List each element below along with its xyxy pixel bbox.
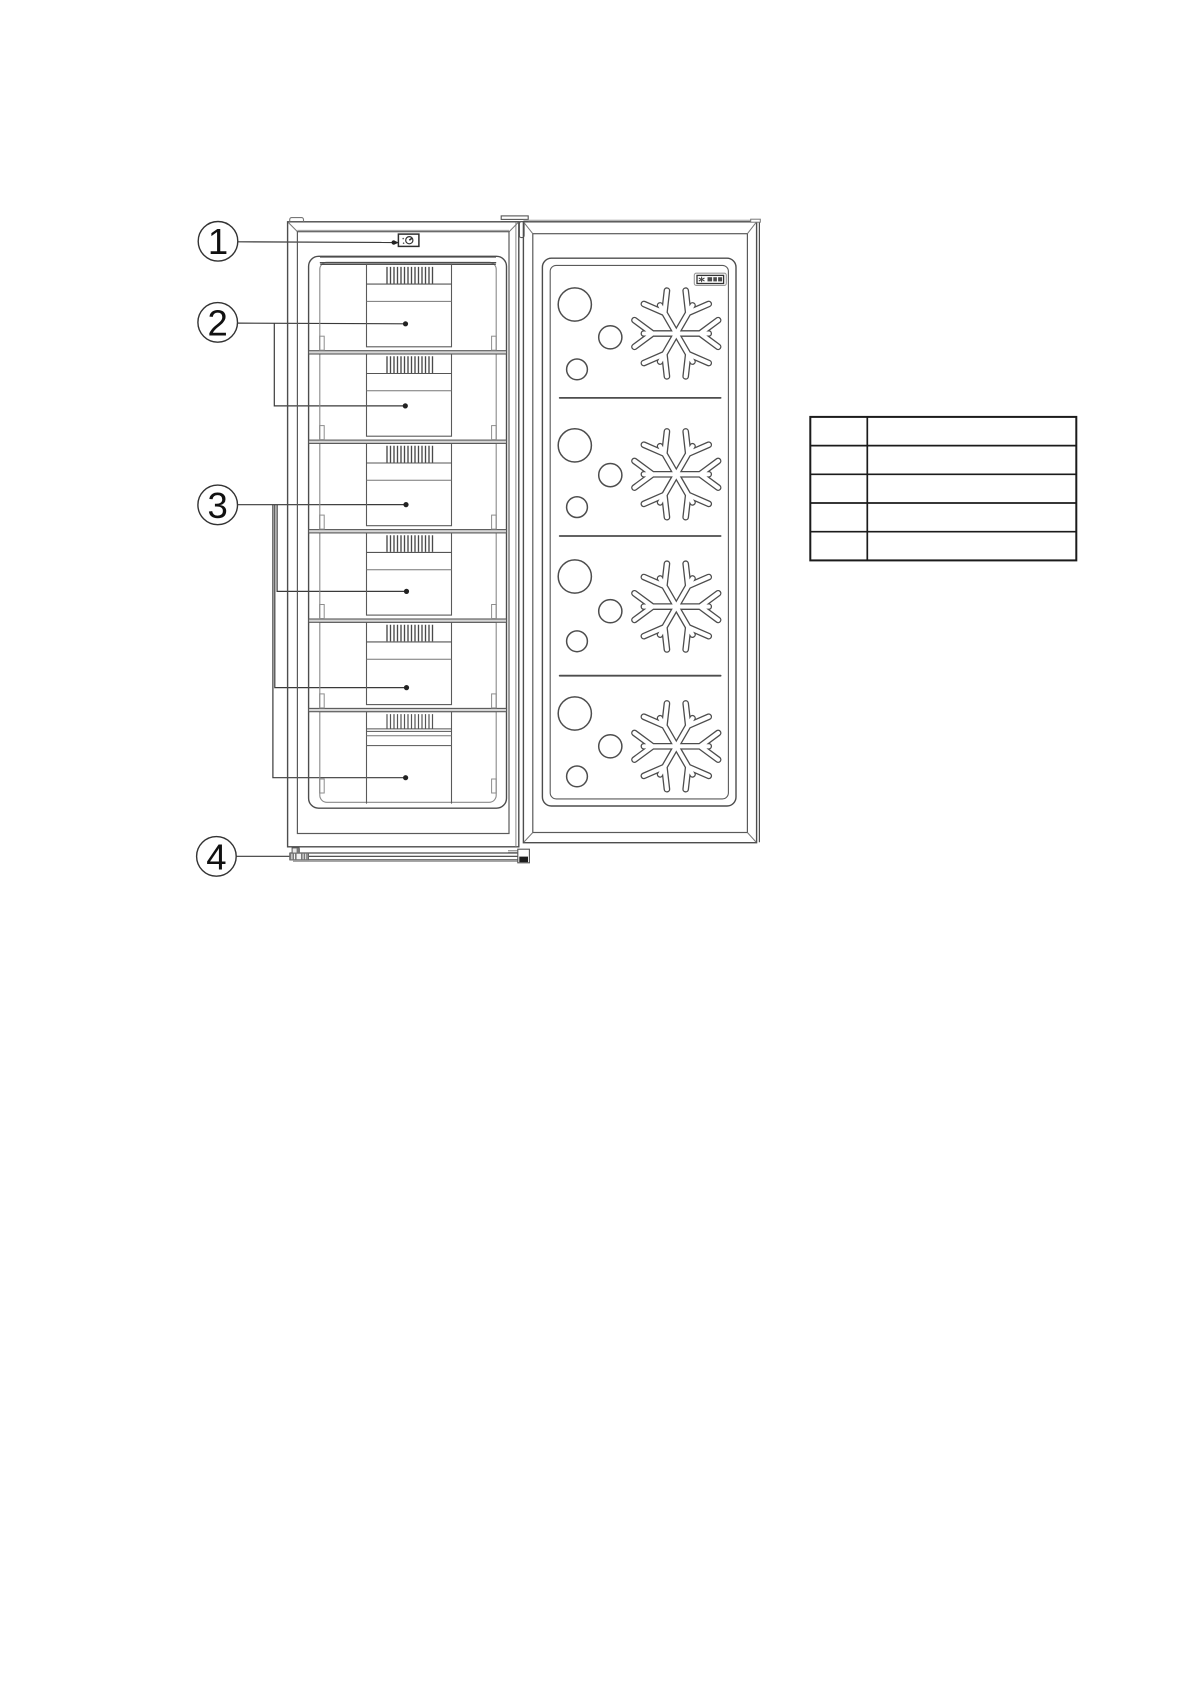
- svg-text:4: 4: [206, 836, 226, 877]
- svg-text:1: 1: [208, 221, 228, 262]
- svg-text:3: 3: [208, 485, 228, 526]
- svg-text:2: 2: [208, 302, 228, 343]
